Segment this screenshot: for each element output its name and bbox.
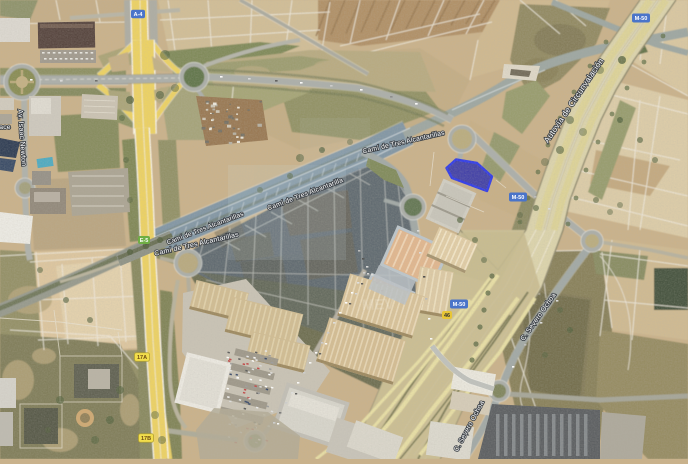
svg-text:E-5: E-5	[140, 238, 149, 244]
svg-text:M-50: M-50	[635, 16, 648, 22]
svg-text:A-4: A-4	[134, 12, 143, 18]
svg-text:M-50: M-50	[453, 302, 466, 308]
svg-text:17B: 17B	[141, 436, 151, 442]
svg-text:46: 46	[444, 313, 450, 319]
svg-text:M-50: M-50	[512, 195, 525, 201]
svg-text:17A: 17A	[137, 355, 147, 361]
svg-text:ace: ace	[0, 124, 11, 131]
